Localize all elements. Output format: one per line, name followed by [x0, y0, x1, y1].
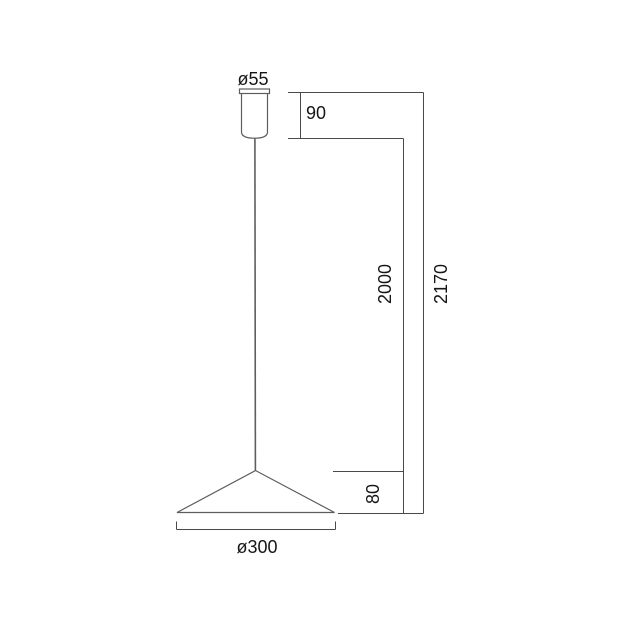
total-height-label: 2170	[431, 264, 451, 304]
lamp-object-group	[177, 89, 335, 513]
shade-cone	[177, 471, 335, 513]
shade-diameter-label: ø300	[236, 537, 277, 557]
canopy-diameter-label: ø55	[237, 69, 268, 89]
drawing-canvas: ø55 90 2000 2170 80 ø300	[0, 0, 630, 630]
dimension-lines-group	[177, 93, 424, 530]
dimension-labels-group: ø55 90 2000 2170 80 ø300	[236, 69, 451, 557]
canopy-cap	[240, 89, 270, 94]
suspension-length-label: 2000	[375, 264, 395, 304]
dimension-line-shade-diameter	[177, 522, 336, 530]
suspension-cable	[255, 138, 256, 470]
canopy-height-label: 90	[306, 103, 326, 123]
canopy-body	[242, 94, 268, 139]
shade-height-label: 80	[363, 484, 383, 504]
pendant-lamp-dimension-drawing: ø55 90 2000 2170 80 ø300	[0, 0, 630, 630]
